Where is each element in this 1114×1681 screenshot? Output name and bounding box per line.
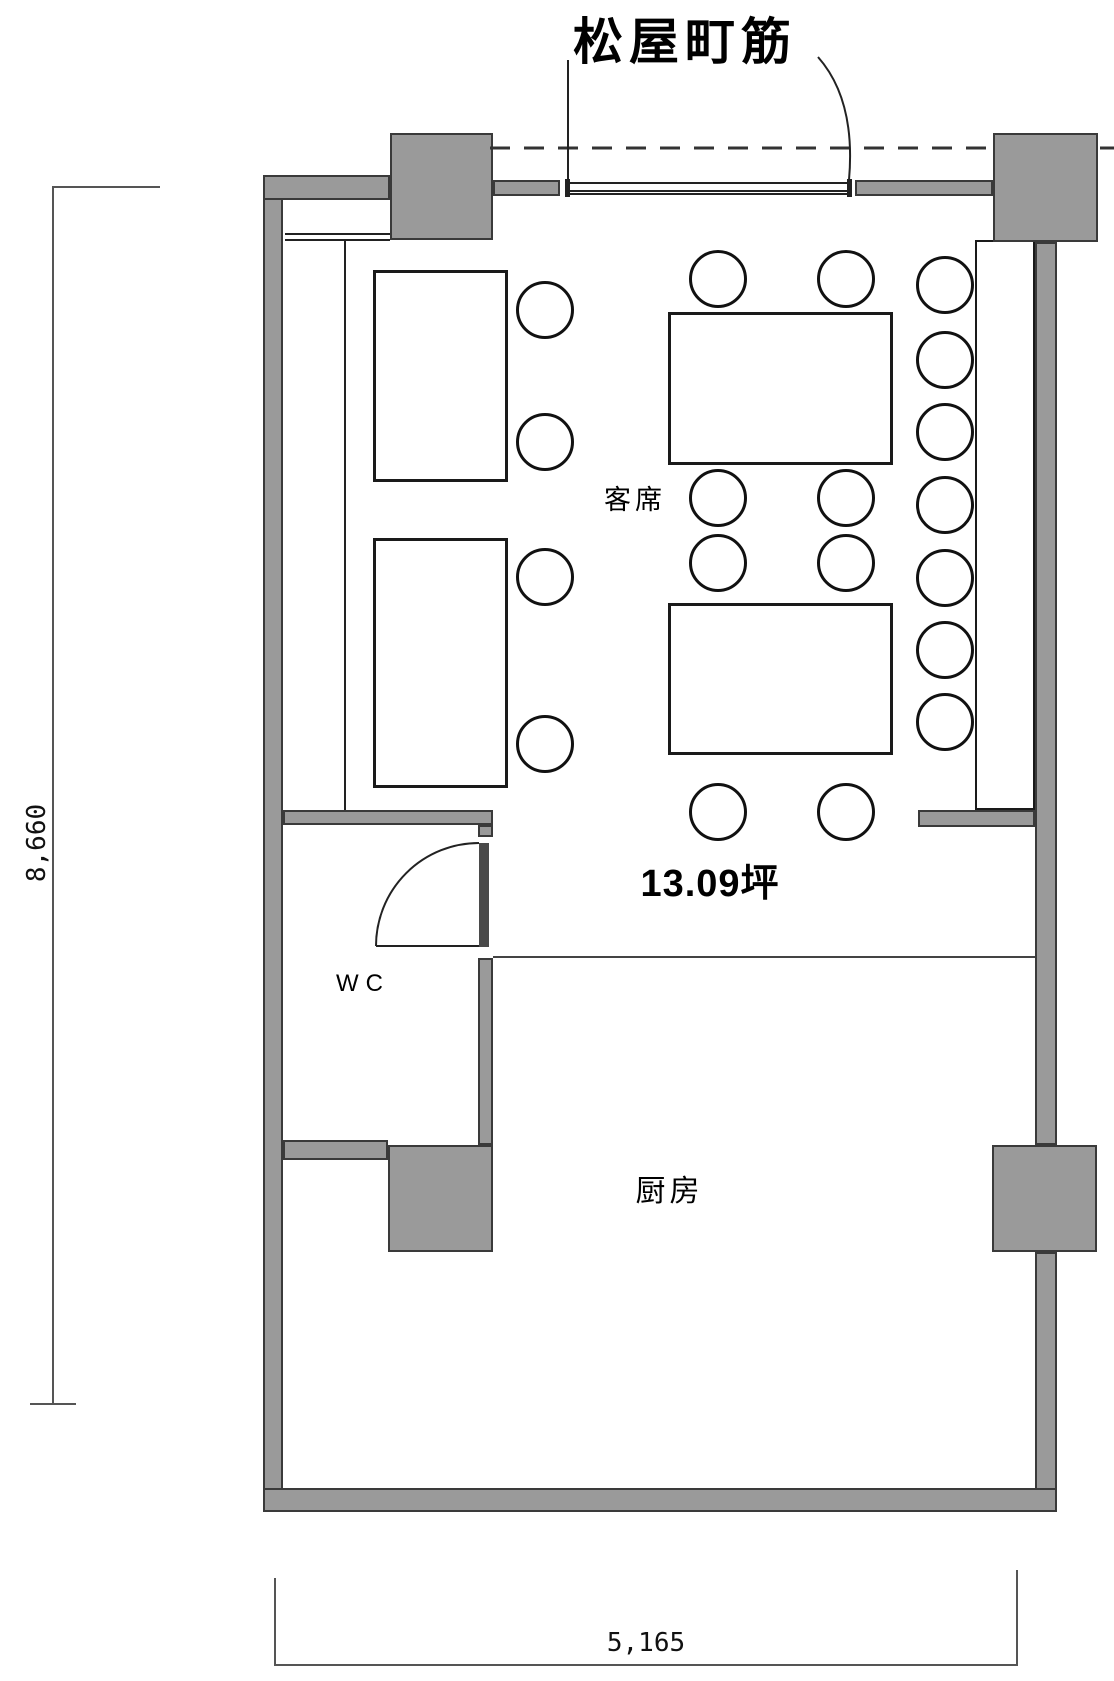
street-name-label: 松屋町筋	[540, 2, 830, 74]
column-bottom-right	[992, 1145, 1097, 1252]
wc-wall-right-upper	[478, 825, 493, 837]
wc-wall-right-lower	[478, 958, 493, 1145]
floor-plan: 松屋町筋 客席 13.09坪 WC 厨房 8,660 5,165	[0, 0, 1114, 1681]
table	[668, 312, 893, 465]
wc-wall-top	[283, 810, 493, 825]
width-dimension: 5,165	[556, 1628, 736, 1658]
chair	[689, 250, 747, 308]
column-top-left	[390, 133, 493, 240]
chair	[689, 783, 747, 841]
chair	[817, 783, 875, 841]
wall-left	[263, 175, 283, 1512]
column-bottom-left	[388, 1145, 493, 1252]
bench-line	[344, 240, 346, 810]
storefront-end-tick-right	[847, 179, 852, 197]
kitchen-divider-line	[493, 956, 1035, 958]
table	[668, 603, 893, 755]
chair	[516, 281, 574, 339]
chair	[916, 256, 974, 314]
floor-area-label: 13.09坪	[595, 852, 825, 907]
chair	[817, 469, 875, 527]
width-dimension-line	[275, 1664, 1017, 1666]
wall-right-lower	[1035, 1252, 1057, 1512]
wc-wall-bottom	[283, 1140, 388, 1160]
chair	[916, 621, 974, 679]
wc-label: WC	[318, 970, 408, 998]
shelf-line-upper	[285, 233, 390, 235]
wall-right-upper	[1035, 242, 1057, 1145]
column-top-right	[993, 133, 1098, 242]
wall-top-mid	[493, 180, 560, 196]
height-dimension: 8,660	[22, 783, 52, 903]
chair	[916, 693, 974, 751]
storefront-end-tick-left	[565, 179, 570, 197]
height-dimension-top-tick	[52, 186, 160, 188]
wc-door-open-line	[376, 945, 479, 947]
chair	[916, 476, 974, 534]
height-dimension-line	[52, 187, 54, 1405]
chair	[516, 548, 574, 606]
shelf-line-lower	[285, 239, 390, 241]
street-leader-arc	[818, 57, 850, 180]
chair	[817, 534, 875, 592]
height-dimension-bottom-tick	[30, 1403, 76, 1405]
chair	[916, 403, 974, 461]
chair	[817, 250, 875, 308]
seating-area-label: 客席	[580, 478, 690, 517]
counter	[975, 240, 1035, 810]
storefront-glass	[570, 182, 847, 195]
low-wall-right	[918, 810, 1035, 827]
wc-door-swing-arc	[376, 843, 479, 946]
chair	[689, 534, 747, 592]
wc-door	[479, 843, 489, 947]
chair	[916, 331, 974, 389]
chair	[689, 469, 747, 527]
width-dimension-left-tick	[274, 1578, 276, 1666]
width-dimension-right-tick	[1016, 1570, 1018, 1666]
chair	[516, 715, 574, 773]
wall-bottom	[263, 1488, 1057, 1512]
kitchen-label: 厨房	[622, 1166, 717, 1210]
table	[373, 270, 508, 482]
chair	[516, 413, 574, 471]
table	[373, 538, 508, 788]
annotation-overlay	[0, 0, 1114, 1681]
storefront-glass-midline	[570, 190, 847, 192]
wall-top-right	[855, 180, 993, 196]
wall-top-left	[263, 175, 390, 200]
chair	[916, 549, 974, 607]
